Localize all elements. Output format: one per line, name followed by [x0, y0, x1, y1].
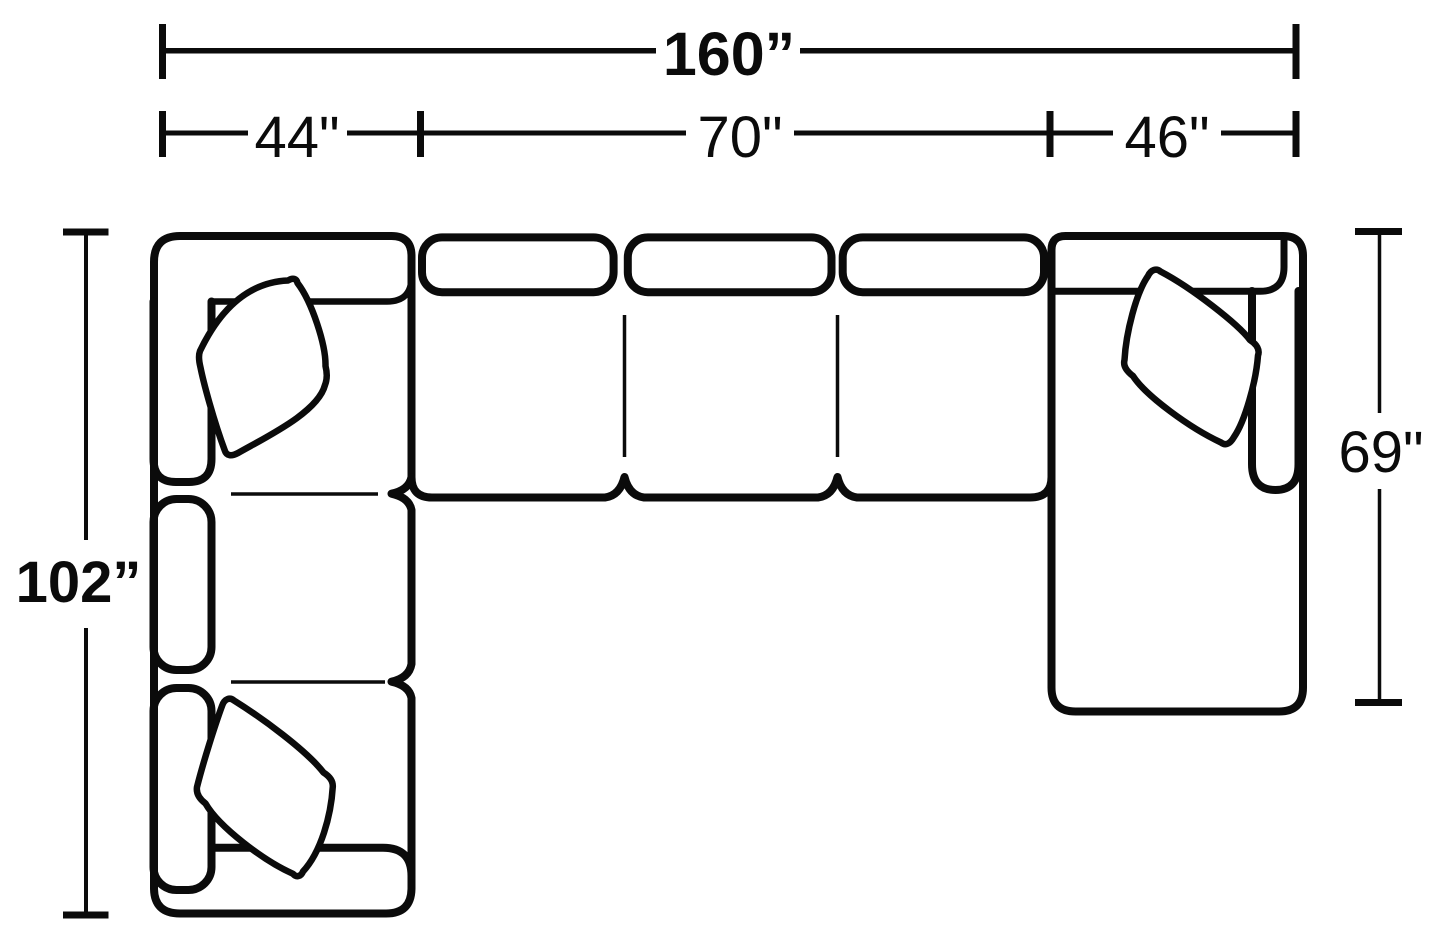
- svg-text:44": 44": [254, 105, 339, 170]
- svg-text:46": 46": [1124, 105, 1209, 170]
- svg-text:160”: 160”: [663, 20, 795, 88]
- svg-text:70": 70": [697, 105, 782, 170]
- svg-text:102”: 102”: [16, 550, 142, 615]
- svg-text:69": 69": [1338, 420, 1423, 485]
